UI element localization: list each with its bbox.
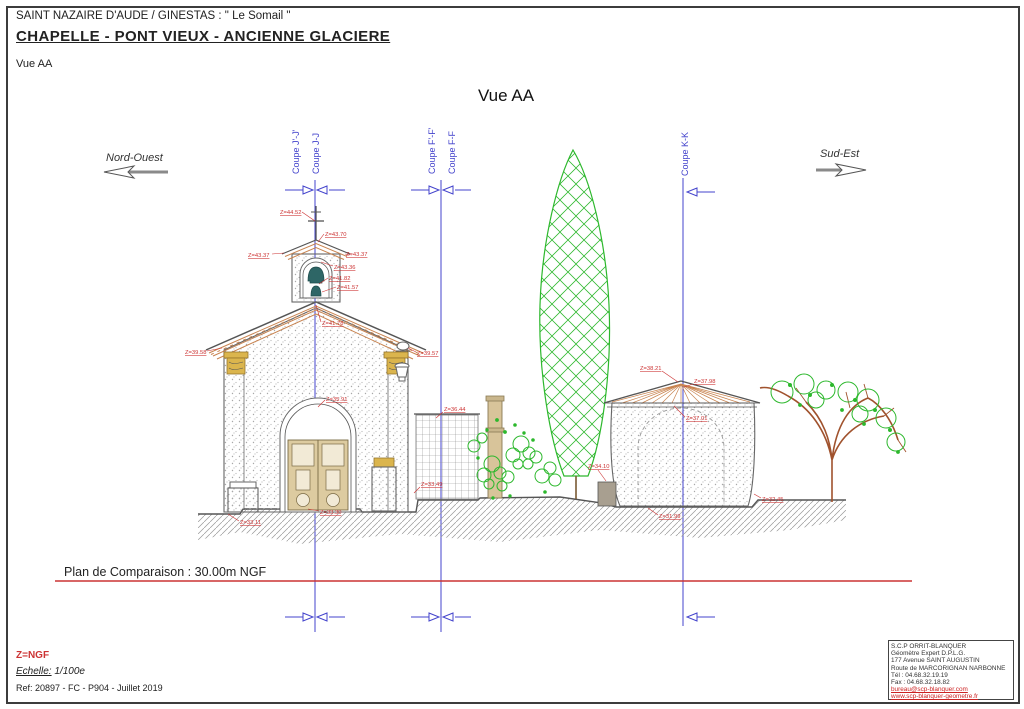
section-label-k: Coupe K-K (680, 132, 690, 176)
chapel (206, 206, 426, 512)
elevation-label: Z=43.70 (325, 232, 346, 238)
view-title: Vue AA (478, 86, 535, 105)
scale-label: Echelle: (16, 666, 52, 677)
stamp-fax: Fax : 04.68.32.18.82 (891, 679, 1011, 686)
orientation-north-west: Nord-Ouest (104, 152, 168, 178)
pedestal-left (228, 482, 258, 512)
glaciere-roof-fan (612, 384, 750, 403)
elevation-label: Z=31.99 (659, 514, 680, 520)
section-line-ff: Coupe F'-F' Coupe F-F (411, 127, 471, 632)
bell-icon (308, 267, 324, 283)
glaciere-wall (611, 403, 755, 506)
stone-block (598, 482, 616, 506)
drawing-reference: Ref: 20897 - FC - P904 - Juillet 2019 (16, 683, 163, 693)
corner-capital-left (224, 352, 248, 374)
elevation-label: Z=33.30 (320, 510, 341, 516)
elevation-label: Z=33.11 (240, 520, 261, 526)
stamp-address-2: Route de MARCORIGNAN NARBONNE (891, 665, 1011, 672)
scale-value: 1/100e (54, 666, 85, 677)
stamp-company: S.C.P ORRIT-BLANQUER (891, 643, 1011, 650)
entrance-door (280, 398, 356, 512)
datum: Plan de Comparaison : 30.00m NGF (55, 565, 912, 581)
cross-icon (308, 206, 324, 240)
section-label-j-prime: Coupe J'-J' (291, 129, 301, 174)
cypress-tree (540, 150, 610, 499)
stamp-email-link[interactable]: bureau@scp-blanquer.com (891, 686, 1011, 693)
scale-note: Echelle: 1/100e (16, 666, 85, 677)
datum-label: Plan de Comparaison : 30.00m NGF (64, 565, 267, 579)
stamp-address-1: 177 Avenue SAINT AUGUSTIN (891, 657, 1011, 664)
deciduous-tree (760, 374, 906, 502)
orientation-right-label: Sud-Est (820, 148, 860, 160)
section-label-f-prime: Coupe F'-F' (427, 127, 437, 174)
section-label-j: Coupe J-J (311, 133, 321, 174)
elevation-label: Z=36.44 (444, 407, 466, 413)
elevation-label: Z=39.58 (185, 350, 206, 356)
elevation-drawing: Vue AA Nord-Ouest Sud-Est Coupe J'-J' Co… (0, 0, 1024, 709)
orientation-left-label: Nord-Ouest (106, 152, 164, 164)
pedestal-right (372, 458, 396, 511)
elevation-label: Z=41.82 (329, 276, 350, 282)
elevation-label: Z=44.52 (280, 210, 301, 216)
stamp-website-link[interactable]: www.scp-blanquer-geometre.fr (891, 693, 1011, 700)
elevation-label: Z=32.45 (762, 497, 783, 503)
datum-reference: Z=NGF (16, 650, 49, 661)
elevation-label: Z=41.57 (337, 285, 358, 291)
small-bell-icon (311, 286, 321, 296)
stamp-phone: Tél : 04.68.32.19.19 (891, 672, 1011, 679)
elevation-label: Z=34.10 (588, 464, 609, 470)
section-label-f: Coupe F-F (447, 130, 457, 174)
elevation-label: Z=39.57 (417, 351, 438, 357)
elevation-label: Z=41.78 (322, 321, 343, 327)
elevation-label: Z=43.37 (248, 253, 269, 259)
elevation-label: Z=33.49 (421, 482, 442, 488)
elevation-label: Z=43.36 (334, 265, 355, 271)
elevation-label: Z=43.37 (346, 252, 367, 258)
bushes (468, 419, 561, 500)
drawing-sheet: SAINT NAZAIRE D'AUDE / GINESTAS : " Le S… (0, 0, 1024, 709)
stamp-profession: Géomètre Expert D.P.L.G. (891, 650, 1011, 657)
elevation-label: Z=35.91 (326, 397, 347, 403)
elevation-label: Z=37.01 (686, 416, 707, 422)
elevation-label: Z=38.21 (640, 366, 661, 372)
glaciere (598, 381, 760, 506)
elevation-label: Z=37.98 (694, 379, 715, 385)
orientation-south-est: Sud-Est (816, 148, 866, 176)
surveyor-stamp: S.C.P ORRIT-BLANQUER Géomètre Expert D.P… (888, 640, 1014, 700)
gate-pillar (486, 396, 504, 498)
